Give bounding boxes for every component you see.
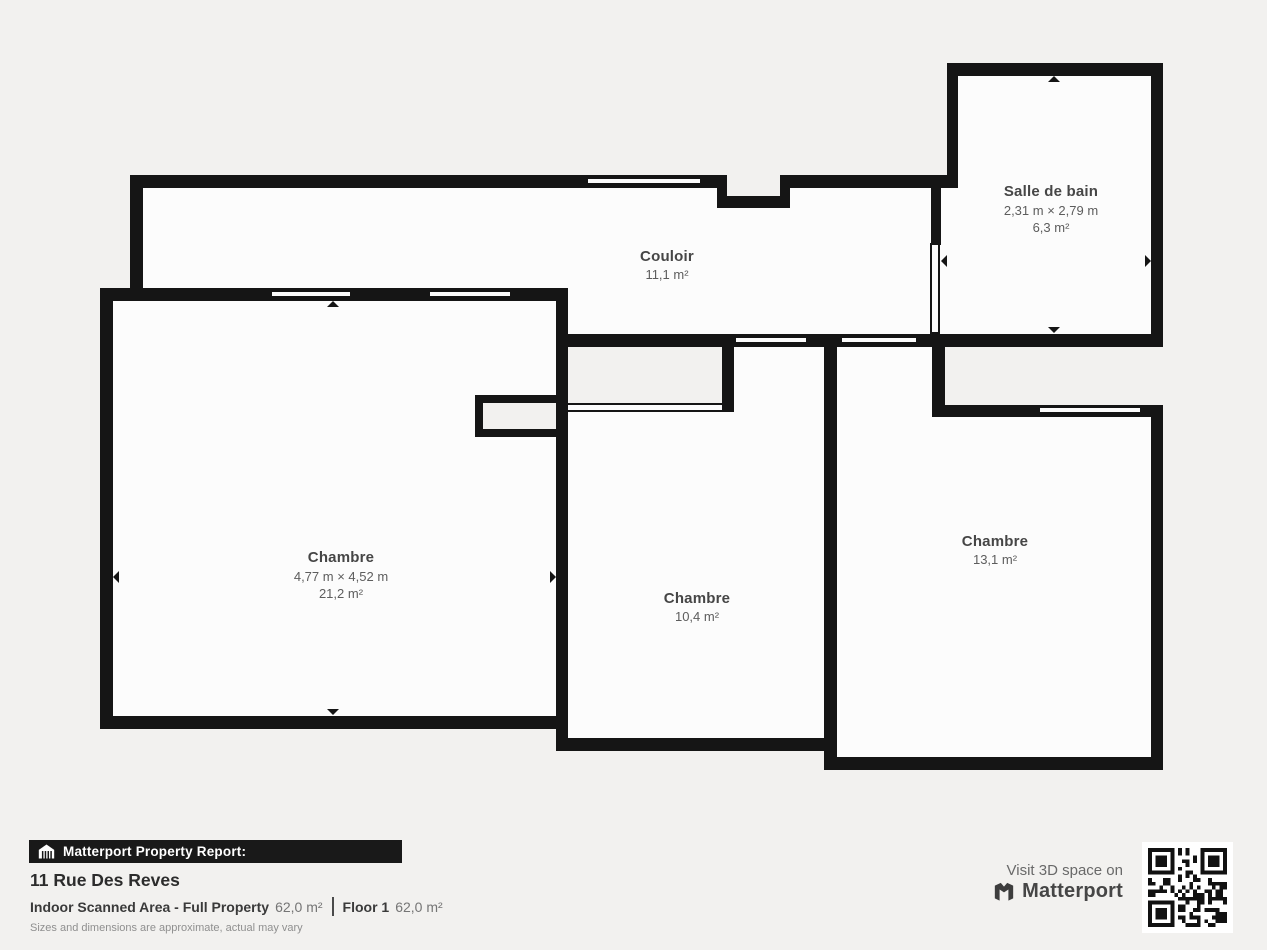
room-area: 6,3 m² bbox=[1004, 220, 1098, 235]
room-label-couloir: Couloir 11,1 m² bbox=[640, 248, 694, 282]
room-area: 13,1 m² bbox=[962, 552, 1028, 567]
dimension-arrow-up bbox=[1048, 76, 1060, 82]
wall bbox=[1151, 63, 1163, 343]
wall bbox=[722, 334, 734, 412]
bathroom-door bbox=[930, 243, 940, 334]
room-name: Chambre bbox=[664, 590, 730, 607]
wall bbox=[947, 63, 958, 188]
niche-interior bbox=[483, 403, 556, 429]
scanned-area-label: Indoor Scanned Area - Full Property bbox=[30, 899, 269, 915]
door-opening bbox=[842, 336, 916, 344]
dimension-arrow-left bbox=[941, 255, 947, 267]
room-area: 10,4 m² bbox=[664, 609, 730, 624]
qr-code bbox=[1142, 842, 1233, 933]
window-opening bbox=[588, 177, 700, 185]
wall bbox=[717, 196, 790, 208]
dimension-arrow-right bbox=[550, 571, 556, 583]
floor-area-value: 62,0 m² bbox=[395, 899, 442, 915]
room-name: Chambre bbox=[294, 549, 388, 566]
room-label-chambre-right: Chambre 13,1 m² bbox=[962, 533, 1028, 567]
wall bbox=[100, 288, 113, 729]
room-dimensions: 4,77 m × 4,52 m bbox=[294, 569, 388, 584]
dimension-arrow-down bbox=[1048, 327, 1060, 333]
area-info-line: Indoor Scanned Area - Full Property 62,0… bbox=[30, 897, 443, 916]
matterport-logo: Matterport bbox=[993, 880, 1123, 903]
room-area: 21,2 m² bbox=[294, 586, 388, 601]
closet-interior bbox=[566, 345, 724, 406]
bedroom-right-strip-floor bbox=[832, 340, 940, 762]
wall-notch-exterior bbox=[727, 170, 780, 198]
room-name: Couloir bbox=[640, 248, 694, 265]
dimension-arrow-up bbox=[327, 301, 339, 307]
room-label-salle-de-bain: Salle de bain 2,31 m × 2,79 m 6,3 m² bbox=[1004, 183, 1098, 235]
wall bbox=[556, 738, 837, 751]
dimension-arrow-left bbox=[113, 571, 119, 583]
wall bbox=[824, 757, 1163, 770]
room-name: Chambre bbox=[962, 533, 1028, 550]
house-icon bbox=[38, 844, 55, 859]
wall bbox=[947, 63, 1163, 76]
wall bbox=[931, 188, 941, 245]
closet-sliding-door bbox=[566, 403, 724, 412]
wall bbox=[130, 175, 143, 295]
disclaimer-text: Sizes and dimensions are approximate, ac… bbox=[30, 922, 303, 934]
door-opening bbox=[272, 290, 350, 298]
room-area: 11,1 m² bbox=[640, 267, 694, 282]
room-label-chambre-middle: Chambre 10,4 m² bbox=[664, 590, 730, 624]
room-name: Salle de bain bbox=[1004, 183, 1098, 200]
door-opening bbox=[430, 290, 510, 298]
scanned-area-value: 62,0 m² bbox=[275, 899, 322, 915]
wall bbox=[1151, 405, 1163, 770]
property-address: 11 Rue Des Reves bbox=[30, 870, 180, 891]
dimension-arrow-right bbox=[1145, 255, 1151, 267]
wall bbox=[780, 175, 958, 188]
door-opening bbox=[736, 336, 806, 344]
wall bbox=[824, 334, 837, 770]
wall bbox=[556, 288, 568, 750]
report-banner-label: Matterport Property Report: bbox=[63, 844, 246, 859]
floor-label: Floor 1 bbox=[343, 899, 390, 915]
separator bbox=[332, 897, 334, 916]
dimension-arrow-down bbox=[327, 709, 339, 715]
bedroom-large-floor bbox=[110, 295, 560, 722]
matterport-wordmark: Matterport bbox=[1022, 880, 1123, 903]
floor-plan: Couloir 11,1 m² Salle de bain 2,31 m × 2… bbox=[0, 0, 1267, 950]
room-dimensions: 2,31 m × 2,79 m bbox=[1004, 203, 1098, 218]
matterport-m-icon bbox=[993, 881, 1015, 903]
report-banner: Matterport Property Report: bbox=[29, 840, 402, 863]
bedroom-right-floor bbox=[940, 410, 1155, 762]
visit-3d-text: Visit 3D space on bbox=[1007, 862, 1123, 879]
window-opening bbox=[1040, 406, 1140, 414]
wall bbox=[100, 716, 568, 729]
room-label-chambre-large: Chambre 4,77 m × 4,52 m 21,2 m² bbox=[294, 549, 388, 601]
